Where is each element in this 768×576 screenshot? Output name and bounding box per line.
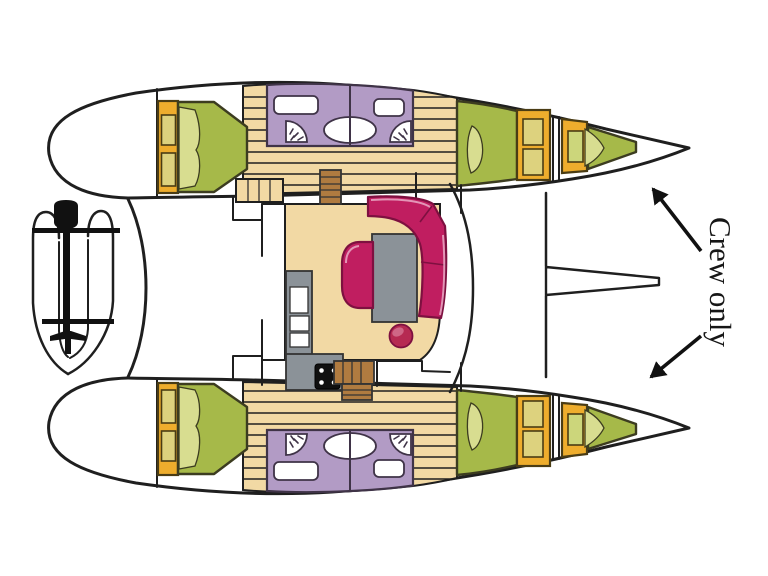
dinghy [33, 211, 113, 374]
sink-counter [274, 96, 318, 114]
bridgedeck [233, 170, 659, 400]
catamaran-floorplan-page: Crew only [0, 0, 768, 576]
crew-only-label: Crew only [703, 217, 738, 348]
davit-bar-lower [42, 319, 114, 324]
galley-sink [290, 316, 309, 331]
transom-line [128, 199, 146, 377]
sink-counter [374, 99, 404, 116]
bowsprit [546, 267, 659, 295]
crew-arrow-upper [653, 189, 701, 251]
cabinet-cubby [162, 115, 176, 145]
outboard-motor [50, 200, 86, 354]
cabinet-cubby [162, 153, 176, 186]
salon-table [372, 234, 417, 322]
forward-cabin [457, 101, 559, 186]
companionway-steps-port [320, 170, 341, 204]
catamaran-floorplan: Crew only [0, 0, 768, 576]
crew-arrow-lower [651, 336, 701, 377]
crew-hatch [568, 131, 583, 162]
crew-only-annotation: Crew only [651, 189, 738, 377]
galley-sink [290, 333, 309, 347]
davit-bar-upper [32, 228, 120, 233]
bathroom-block [267, 84, 413, 146]
aft-deck-step [377, 360, 450, 386]
stern-dinghy-davits [32, 199, 146, 377]
aft-cabin-pillow [179, 107, 200, 189]
stove-burner [319, 368, 324, 373]
stove-burner [319, 380, 324, 385]
port-hull [49, 82, 689, 198]
cockpit-bench [233, 196, 262, 380]
cabinet-cubby [523, 149, 543, 175]
coachroof-windshield [450, 184, 473, 392]
forward-cabin-bed [457, 101, 517, 186]
salon-bench-seat [342, 242, 373, 308]
galley-fridge [290, 287, 308, 313]
cabinet-cubby [523, 119, 543, 145]
